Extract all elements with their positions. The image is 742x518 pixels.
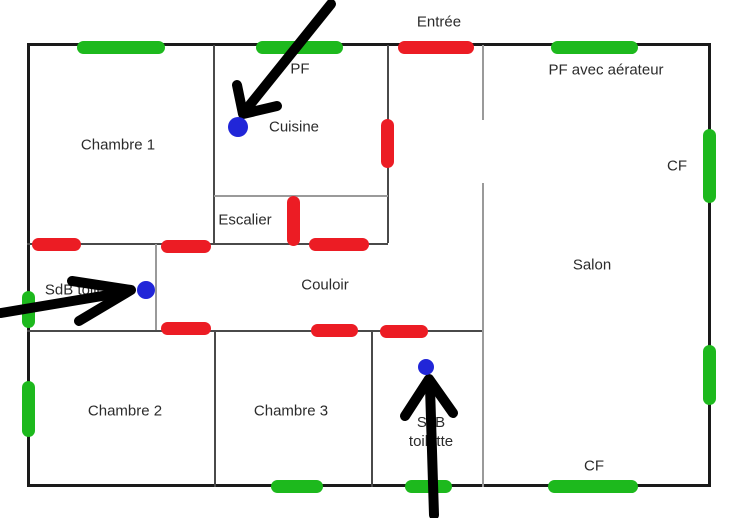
label-sdb-toilette: SdB toilette xyxy=(409,413,453,451)
label-chambre2: Chambre 2 xyxy=(88,402,162,421)
green-marker-bottom-sdb xyxy=(405,480,452,493)
label-cf-right: CF xyxy=(667,157,687,176)
red-marker-escalier xyxy=(287,196,300,246)
label-pf-aerateur: PF avec aérateur xyxy=(548,61,663,80)
wall-entree-salon xyxy=(482,45,484,120)
red-marker-sdb1-top xyxy=(32,238,81,251)
label-salon: Salon xyxy=(573,256,611,275)
label-chambre3: Chambre 3 xyxy=(254,402,328,421)
red-marker-couloir-top-right xyxy=(309,238,369,251)
blue-point-sdb-toilettes xyxy=(137,281,155,299)
wall-sdb-toilettes-right xyxy=(155,244,157,331)
green-marker-right-salon-cf xyxy=(703,129,716,203)
wall-salon-left xyxy=(482,183,484,487)
label-sdb-toilettes: SdB toilettes xyxy=(45,281,129,300)
label-cuisine: Cuisine xyxy=(269,118,319,137)
green-marker-top-chambre1 xyxy=(77,41,165,54)
wall-escalier-top xyxy=(214,195,388,197)
green-marker-top-cuisine xyxy=(256,41,343,54)
label-chambre1: Chambre 1 xyxy=(81,136,155,155)
wall-chambre1-cuisine xyxy=(213,45,215,244)
wall-chambre3-sdb xyxy=(371,331,373,487)
label-entree: Entrée xyxy=(417,13,461,32)
blue-point-cuisine xyxy=(228,117,248,137)
green-marker-bottom-salon-cf xyxy=(548,480,638,493)
red-marker-couloir-bottom-1 xyxy=(161,322,211,335)
label-cf-bottom: CF xyxy=(584,457,604,476)
green-marker-top-salon xyxy=(551,41,638,54)
green-marker-left-chambre2 xyxy=(22,381,35,437)
red-marker-sdb2-top xyxy=(380,325,428,338)
blue-point-sdb-toilette xyxy=(418,359,434,375)
label-escalier: Escalier xyxy=(218,211,271,230)
red-marker-couloir-bottom-2 xyxy=(311,324,358,337)
red-marker-couloir-top-left xyxy=(161,240,211,253)
floor-plan-canvas: EntréePFPF avec aérateurCuisineChambre 1… xyxy=(0,0,742,518)
red-marker-entree-door xyxy=(398,41,474,54)
wall-chambre2-chambre3 xyxy=(214,331,216,487)
green-marker-right-salon-2 xyxy=(703,345,716,405)
red-marker-cuisine-entree xyxy=(381,119,394,168)
green-marker-bottom-chambre3 xyxy=(271,480,323,493)
label-pf: PF xyxy=(290,60,309,79)
label-couloir: Couloir xyxy=(301,276,349,295)
green-marker-left-sdb xyxy=(22,291,35,328)
